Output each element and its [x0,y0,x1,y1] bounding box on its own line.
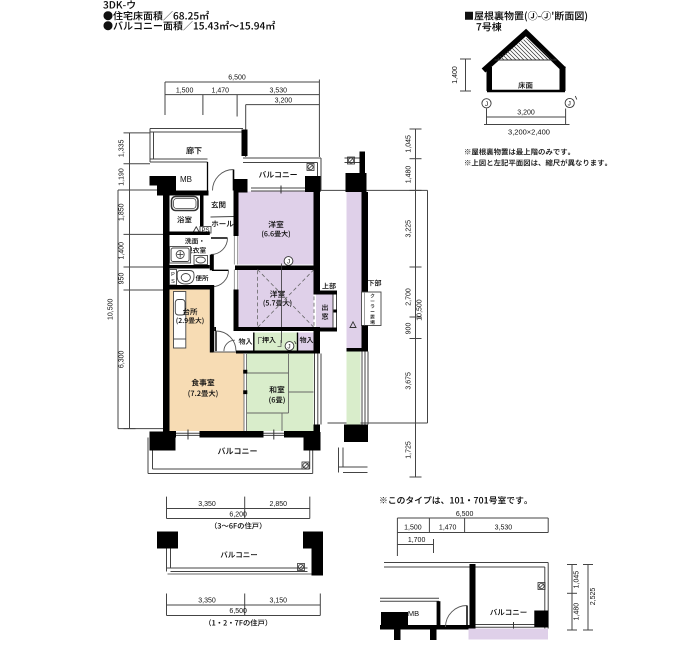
svg-text:P: P [171,272,175,278]
svg-text:J: J [568,101,571,108]
svg-text:1,500: 1,500 [176,88,194,95]
svg-text:1,335: 1,335 [119,139,126,157]
svg-text:J: J [287,259,290,266]
svg-text:10,500: 10,500 [417,299,424,321]
svg-text:1,190: 1,190 [119,168,126,186]
svg-text:1,480: 1,480 [406,166,413,184]
svg-text:1,850: 1,850 [119,203,126,221]
svg-text:3,200: 3,200 [517,110,535,117]
svg-text:10,500: 10,500 [108,298,115,320]
svg-text:6,300: 6,300 [119,350,126,368]
svg-text:1,470: 1,470 [439,525,457,532]
svg-text:950: 950 [119,273,126,285]
svg-text:1,500: 1,500 [404,525,422,532]
svg-text:3,675: 3,675 [406,372,413,390]
svg-text:1,480: 1,480 [574,603,581,621]
svg-text:1,400: 1,400 [452,66,459,84]
svg-text:1,045: 1,045 [574,571,581,589]
svg-text:900: 900 [406,323,413,335]
svg-text:S: S [171,279,175,285]
svg-text:MB: MB [180,175,192,184]
svg-text:1,700: 1,700 [408,537,426,544]
svg-text:3,530: 3,530 [495,525,513,532]
svg-text:1,470: 1,470 [212,88,230,95]
svg-text:3,150: 3,150 [270,598,288,605]
svg-text:6,500: 6,500 [456,511,474,518]
svg-text:J: J [287,344,290,351]
svg-text:3,200×2,400: 3,200×2,400 [508,128,550,137]
svg-text:3,350: 3,350 [198,598,216,605]
svg-text:MB: MB [408,609,419,618]
svg-text:3,350: 3,350 [198,501,216,508]
svg-text:6,200: 6,200 [229,512,247,519]
svg-text:2,850: 2,850 [270,501,288,508]
svg-text:3,530: 3,530 [270,88,288,95]
svg-text:2,525: 2,525 [590,588,597,606]
svg-text:2,700: 2,700 [406,288,413,306]
svg-text:3,225: 3,225 [406,220,413,238]
svg-text:6,500: 6,500 [229,608,247,615]
svg-text:1,400: 1,400 [119,242,126,260]
svg-text:6,500: 6,500 [228,75,246,82]
svg-text:3,200: 3,200 [275,98,293,105]
svg-text:1,045: 1,045 [406,135,413,153]
svg-text:1,725: 1,725 [406,441,413,459]
svg-text:J: J [485,101,488,108]
